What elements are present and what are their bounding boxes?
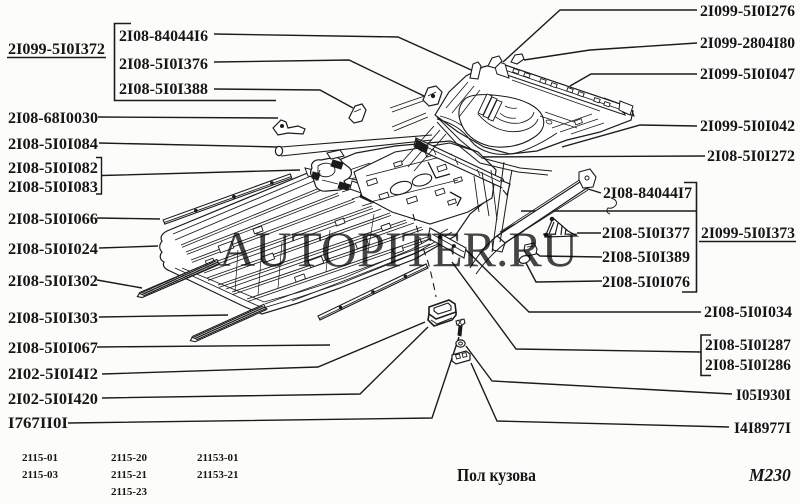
svg-text:2I08-84044I7: 2I08-84044I7	[603, 185, 692, 202]
svg-text:2I02-5I0I420: 2I02-5I0I420	[8, 391, 98, 408]
svg-text:AUTOPITER.RU: AUTOPITER.RU	[219, 221, 578, 277]
svg-text:2I099-5I0I372: 2I099-5I0I372	[8, 41, 105, 58]
svg-text:2I08-5I0I376: 2I08-5I0I376	[119, 56, 208, 73]
svg-text:2I08-84044I6: 2I08-84044I6	[119, 28, 208, 45]
svg-text:2I08-5I0I388: 2I08-5I0I388	[119, 81, 208, 98]
svg-text:2I099-2804I80: 2I099-2804I80	[700, 35, 795, 52]
svg-text:2I08-5I0I302: 2I08-5I0I302	[8, 273, 98, 290]
svg-text:2I08-5I0I034: 2I08-5I0I034	[704, 304, 792, 321]
svg-text:2I08-5I0I389: 2I08-5I0I389	[602, 249, 690, 266]
svg-text:2115-23: 2115-23	[111, 486, 148, 498]
svg-text:2I08-5I0I303: 2I08-5I0I303	[8, 310, 98, 327]
svg-text:21153-21: 21153-21	[197, 469, 239, 481]
svg-text:2115-20: 2115-20	[111, 452, 148, 464]
svg-text:2115-01: 2115-01	[22, 452, 58, 464]
svg-text:I4I8977I: I4I8977I	[734, 420, 791, 437]
svg-text:2I08-5I0I024: 2I08-5I0I024	[8, 241, 98, 258]
svg-text:2I08-5I0I076: 2I08-5I0I076	[602, 274, 690, 291]
svg-text:2I08-5I0I066: 2I08-5I0I066	[8, 211, 98, 228]
svg-text:2I08-68I0030: 2I08-68I0030	[8, 110, 98, 127]
svg-text:2I099-5I0I276: 2I099-5I0I276	[700, 3, 795, 20]
svg-text:М230: М230	[748, 465, 791, 485]
svg-text:2I02-5I0I4I2: 2I02-5I0I4I2	[8, 366, 98, 383]
svg-text:2I08-5I0I272: 2I08-5I0I272	[707, 148, 795, 165]
svg-text:2I08-5I0I082: 2I08-5I0I082	[8, 160, 98, 177]
svg-text:2I099-5I0I047: 2I099-5I0I047	[700, 66, 795, 83]
svg-text:2I08-5I0I084: 2I08-5I0I084	[8, 136, 98, 153]
svg-text:Пол кузова: Пол кузова	[457, 465, 536, 485]
svg-text:2I099-5I0I373: 2I099-5I0I373	[701, 225, 795, 242]
svg-text:2I08-5I0I287: 2I08-5I0I287	[705, 337, 791, 354]
svg-text:2I08-5I0I377: 2I08-5I0I377	[602, 225, 690, 242]
svg-text:2115-03: 2115-03	[22, 469, 59, 481]
svg-text:I767II0I: I767II0I	[8, 415, 68, 432]
svg-text:2I08-5I0I067: 2I08-5I0I067	[8, 340, 98, 357]
svg-text:2I08-5I0I083: 2I08-5I0I083	[8, 179, 98, 196]
svg-text:21153-01: 21153-01	[197, 452, 239, 464]
svg-text:2I099-5I0I042: 2I099-5I0I042	[700, 118, 795, 135]
svg-text:2115-21: 2115-21	[111, 469, 147, 481]
svg-text:I05I930I: I05I930I	[736, 387, 791, 404]
svg-text:2I08-5I0I286: 2I08-5I0I286	[705, 357, 791, 374]
